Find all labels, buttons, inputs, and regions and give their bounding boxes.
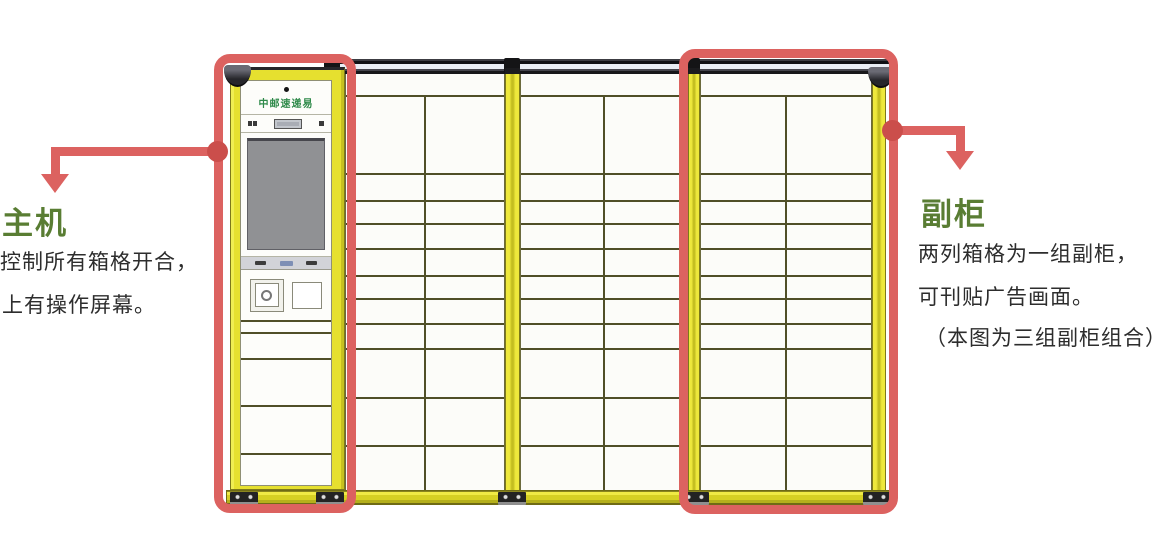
locker-row <box>521 173 687 200</box>
aux-cabinet-desc-line3: （本图为三组副柜组合） <box>925 322 1158 352</box>
locker-row <box>521 200 687 223</box>
locker-row <box>346 248 504 275</box>
cell-divider <box>424 325 426 348</box>
locker-top-spacer <box>346 74 504 95</box>
right-connector-dot <box>882 120 903 141</box>
locker-row <box>521 275 687 298</box>
locker-row <box>521 298 687 323</box>
cell-divider <box>603 202 605 223</box>
locker-row <box>521 95 687 173</box>
cell-divider <box>603 350 605 397</box>
cell-divider <box>424 447 426 490</box>
locker-row <box>346 275 504 298</box>
locker-row <box>521 323 687 348</box>
cell-divider <box>424 202 426 223</box>
locker-row <box>346 445 504 490</box>
left-arrow-line <box>51 147 60 176</box>
cell-divider <box>424 277 426 298</box>
cell-divider <box>603 300 605 323</box>
cell-divider <box>424 300 426 323</box>
cell-divider <box>424 225 426 248</box>
right-arrow-line <box>956 126 965 153</box>
locker-row <box>346 323 504 348</box>
right-arrow-head-icon <box>946 151 974 170</box>
left-arrow-head-icon <box>41 174 69 193</box>
cell-divider <box>603 277 605 298</box>
locker-row <box>346 95 504 173</box>
locker-row <box>521 397 687 445</box>
locker-top-spacer <box>521 74 687 95</box>
aux-cabinet-title: 副柜 <box>921 189 987 234</box>
cell-divider <box>603 97 605 173</box>
aux-cabinet-desc-line2: 可刊贴广告画面。 <box>918 281 1094 311</box>
locker-row <box>346 397 504 445</box>
main-unit-title: 主机 <box>2 198 68 243</box>
cell-divider <box>424 350 426 397</box>
main-unit-highlight-box <box>214 54 356 513</box>
cell-divider <box>603 325 605 348</box>
locker-row <box>521 445 687 490</box>
cell-divider <box>603 225 605 248</box>
locker-section-2 <box>520 74 688 490</box>
locker-row <box>346 298 504 323</box>
diagram-stage: 主机 控制所有箱格开合， 上有操作屏幕。 副柜 两列箱格为一组副柜， 可刊贴广告… <box>0 0 1158 558</box>
cell-divider <box>603 399 605 445</box>
aux-cabinet-desc-line1: 两列箱格为一组副柜， <box>918 238 1138 268</box>
main-unit-desc-line1: 控制所有箱格开合， <box>0 246 198 276</box>
locker-row <box>521 248 687 275</box>
cell-divider <box>424 175 426 200</box>
left-connector-dot <box>207 141 228 162</box>
cell-divider <box>424 97 426 173</box>
cell-divider <box>603 175 605 200</box>
cell-divider <box>424 399 426 445</box>
left-arrow-line <box>53 147 209 156</box>
main-unit-desc-line2: 上有操作屏幕。 <box>2 289 156 319</box>
frame-post <box>505 68 520 490</box>
locker-row <box>521 348 687 397</box>
locker-row <box>346 223 504 248</box>
locker-row <box>346 173 504 200</box>
aux-cabinet-highlight-box <box>679 49 898 514</box>
cell-divider <box>603 447 605 490</box>
locker-row <box>346 348 504 397</box>
cell-divider <box>424 250 426 275</box>
locker-row <box>346 200 504 223</box>
locker-section-1 <box>345 74 505 490</box>
cell-divider <box>603 250 605 275</box>
cabinet-foot <box>498 492 526 505</box>
locker-row <box>521 223 687 248</box>
